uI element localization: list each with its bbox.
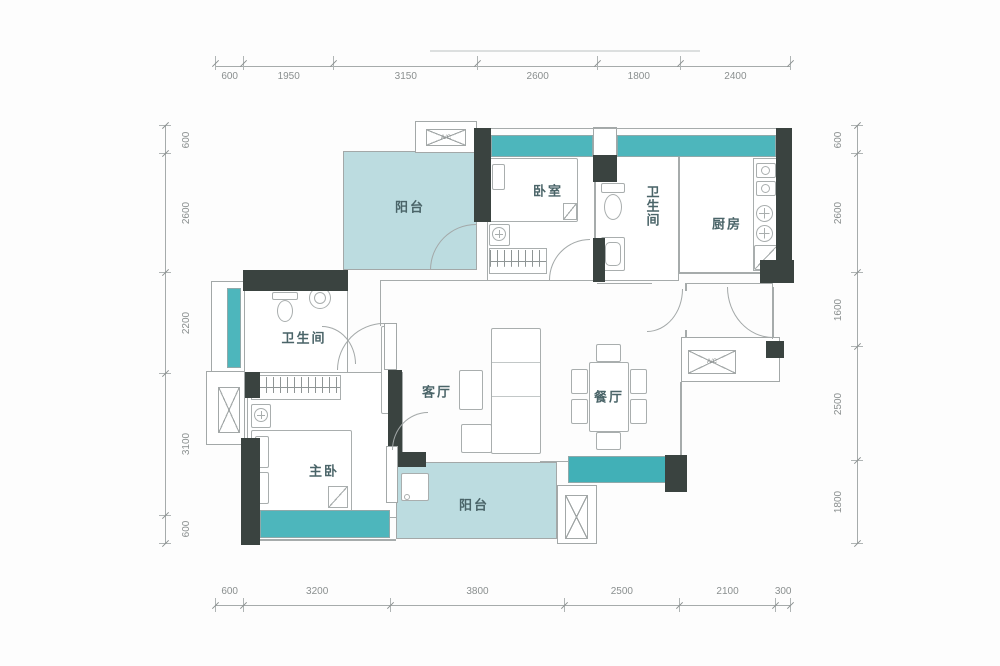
window-band [568, 456, 667, 483]
toilet-icon [601, 183, 625, 193]
toilet-bowl-icon [604, 194, 622, 220]
dimension-segment: 3150 [333, 56, 477, 70]
wall-line [685, 283, 687, 291]
door-arc [647, 289, 683, 332]
room-label-master-bedroom: 主卧 [309, 461, 339, 480]
wall-segment [593, 238, 605, 282]
pillow-icon [492, 164, 505, 190]
dimension-segment: 1950 [243, 56, 333, 70]
dimension-label: 1800 [628, 71, 650, 82]
wall-segment [241, 438, 260, 545]
ac-unit-icon: A/C [688, 350, 736, 374]
wall-line [380, 280, 381, 326]
window-band [491, 135, 593, 157]
pillar-box-top [593, 127, 617, 156]
dimension-segment: 2600 [477, 56, 596, 70]
sofa-seam [492, 362, 540, 363]
dimension-segment: 1800 [851, 460, 863, 544]
room-label-bathroom-main: 卫生间 [281, 328, 326, 347]
dimension-segment: 2100 [679, 598, 776, 612]
dimension-row-bottom: 6003200380025002100300 [215, 598, 791, 612]
dimension-label: 2500 [833, 384, 845, 424]
wall-line [597, 283, 652, 284]
wardrobe-icon [489, 248, 547, 274]
coffee-table-icon [459, 370, 483, 410]
wall-line [477, 280, 550, 281]
wall-segment [776, 128, 792, 275]
dimension-segment: 300 [775, 598, 791, 612]
dimension-segment: 600 [851, 125, 863, 153]
ac-unit-icon: A/C [426, 129, 466, 146]
dimension-label: 2600 [181, 193, 193, 233]
washer-knob-icon [404, 494, 410, 500]
wall-line [260, 539, 396, 541]
dimension-label: 2500 [611, 586, 633, 597]
blanket-fold-icon [328, 486, 348, 508]
ac-unit-label: A/C [427, 135, 465, 141]
toilet-icon [272, 292, 298, 300]
dimension-label: 2600 [833, 193, 845, 233]
wall-line [540, 461, 570, 462]
wall-line [679, 272, 762, 273]
dimension-segment: 2400 [680, 56, 791, 70]
dimension-label: 3200 [306, 586, 328, 597]
sink-drain-icon [761, 166, 770, 175]
chair-icon [571, 399, 588, 424]
dimension-segment: 1800 [597, 56, 680, 70]
chair-icon [630, 399, 647, 424]
wall-line [687, 283, 773, 284]
dimension-label: 2200 [181, 303, 193, 343]
wall-segment [593, 155, 617, 182]
room-label-balcony-bottom: 阳台 [459, 495, 489, 514]
divider [430, 50, 700, 52]
door-leaf [384, 323, 397, 370]
dimension-segment: 3100 [159, 373, 171, 515]
room-label-living: 客厅 [422, 382, 452, 401]
dimension-segment: 2600 [851, 153, 863, 272]
dimension-label: 3100 [181, 424, 193, 464]
wall-segment [665, 455, 687, 492]
ac-unit-label: A/C [689, 359, 735, 365]
stove-burner-icon [756, 205, 773, 222]
window-band [227, 288, 241, 368]
wall-line [680, 382, 682, 458]
dimension-label: 1600 [833, 290, 845, 330]
chair-icon [571, 369, 588, 394]
basin-drain-icon [314, 292, 326, 304]
wardrobe-icon [251, 375, 341, 400]
sink-basin-icon [605, 242, 621, 266]
floor-plan-page: 60019503150260018002400 6003200380025002… [0, 0, 1000, 666]
wall-line [380, 280, 478, 281]
room-label-balcony-top: 阳台 [395, 197, 425, 216]
plant-icon [492, 227, 506, 241]
dimension-column-left: 600260022003100600 [159, 125, 171, 544]
dimension-label: 3150 [395, 71, 417, 82]
door-arc [727, 287, 773, 338]
dimension-segment: 600 [159, 515, 171, 544]
room-label-dining: 餐厅 [594, 387, 624, 406]
wall-segment [245, 372, 260, 398]
window-band [260, 510, 390, 538]
window-band [617, 135, 776, 157]
dimension-segment: 2500 [851, 346, 863, 460]
dimension-segment: 2600 [159, 153, 171, 272]
wall-line [685, 330, 687, 338]
dimension-label: 600 [181, 120, 193, 160]
chair-icon [630, 369, 647, 394]
wall-segment [760, 260, 794, 283]
sofa-icon [491, 328, 541, 454]
wall-segment [474, 128, 491, 222]
plant-icon [254, 408, 268, 422]
sofa-seam [492, 396, 540, 397]
ac-unit-icon [218, 387, 240, 433]
toilet-bowl-icon [277, 300, 293, 322]
dimension-segment: 1600 [851, 272, 863, 346]
dimension-segment: 2500 [564, 598, 679, 612]
dimension-segment: 3800 [390, 598, 564, 612]
dimension-column-right: 6002600160025001800 [851, 125, 863, 544]
dimension-segment: 600 [215, 598, 243, 612]
dimension-label: 1950 [278, 71, 300, 82]
blanket-fold-icon [563, 203, 577, 220]
wall-segment [766, 341, 784, 358]
room-label-bathroom-top: 卫生间 [643, 185, 662, 227]
dimension-label: 600 [833, 120, 845, 160]
door-leaf [386, 446, 398, 503]
dimension-label: 300 [775, 586, 792, 597]
sofa-chaise-icon [461, 424, 492, 453]
ac-unit-icon [565, 495, 588, 539]
dimension-row-top: 60019503150260018002400 [215, 56, 791, 70]
stove-burner-icon [756, 225, 773, 242]
dimension-label: 3800 [466, 586, 488, 597]
dimension-label: 2400 [724, 71, 746, 82]
room-label-bedroom: 卧室 [533, 181, 563, 200]
dimension-label: 2100 [716, 586, 738, 597]
dimension-segment: 3200 [243, 598, 390, 612]
wall-segment [243, 270, 348, 291]
dimension-label: 2600 [527, 71, 549, 82]
sink-drain-icon [761, 184, 770, 193]
dimension-label: 600 [221, 586, 238, 597]
dimension-label: 600 [221, 71, 238, 82]
wall-line [491, 128, 790, 129]
dimension-label: 600 [181, 509, 193, 549]
dimension-label: 1800 [833, 482, 845, 522]
chair-icon [596, 344, 621, 362]
dimension-segment: 600 [215, 56, 243, 70]
dimension-segment: 600 [159, 125, 171, 153]
room-label-kitchen: 厨房 [712, 214, 742, 233]
chair-icon [596, 432, 621, 450]
dimension-segment: 2200 [159, 272, 171, 373]
